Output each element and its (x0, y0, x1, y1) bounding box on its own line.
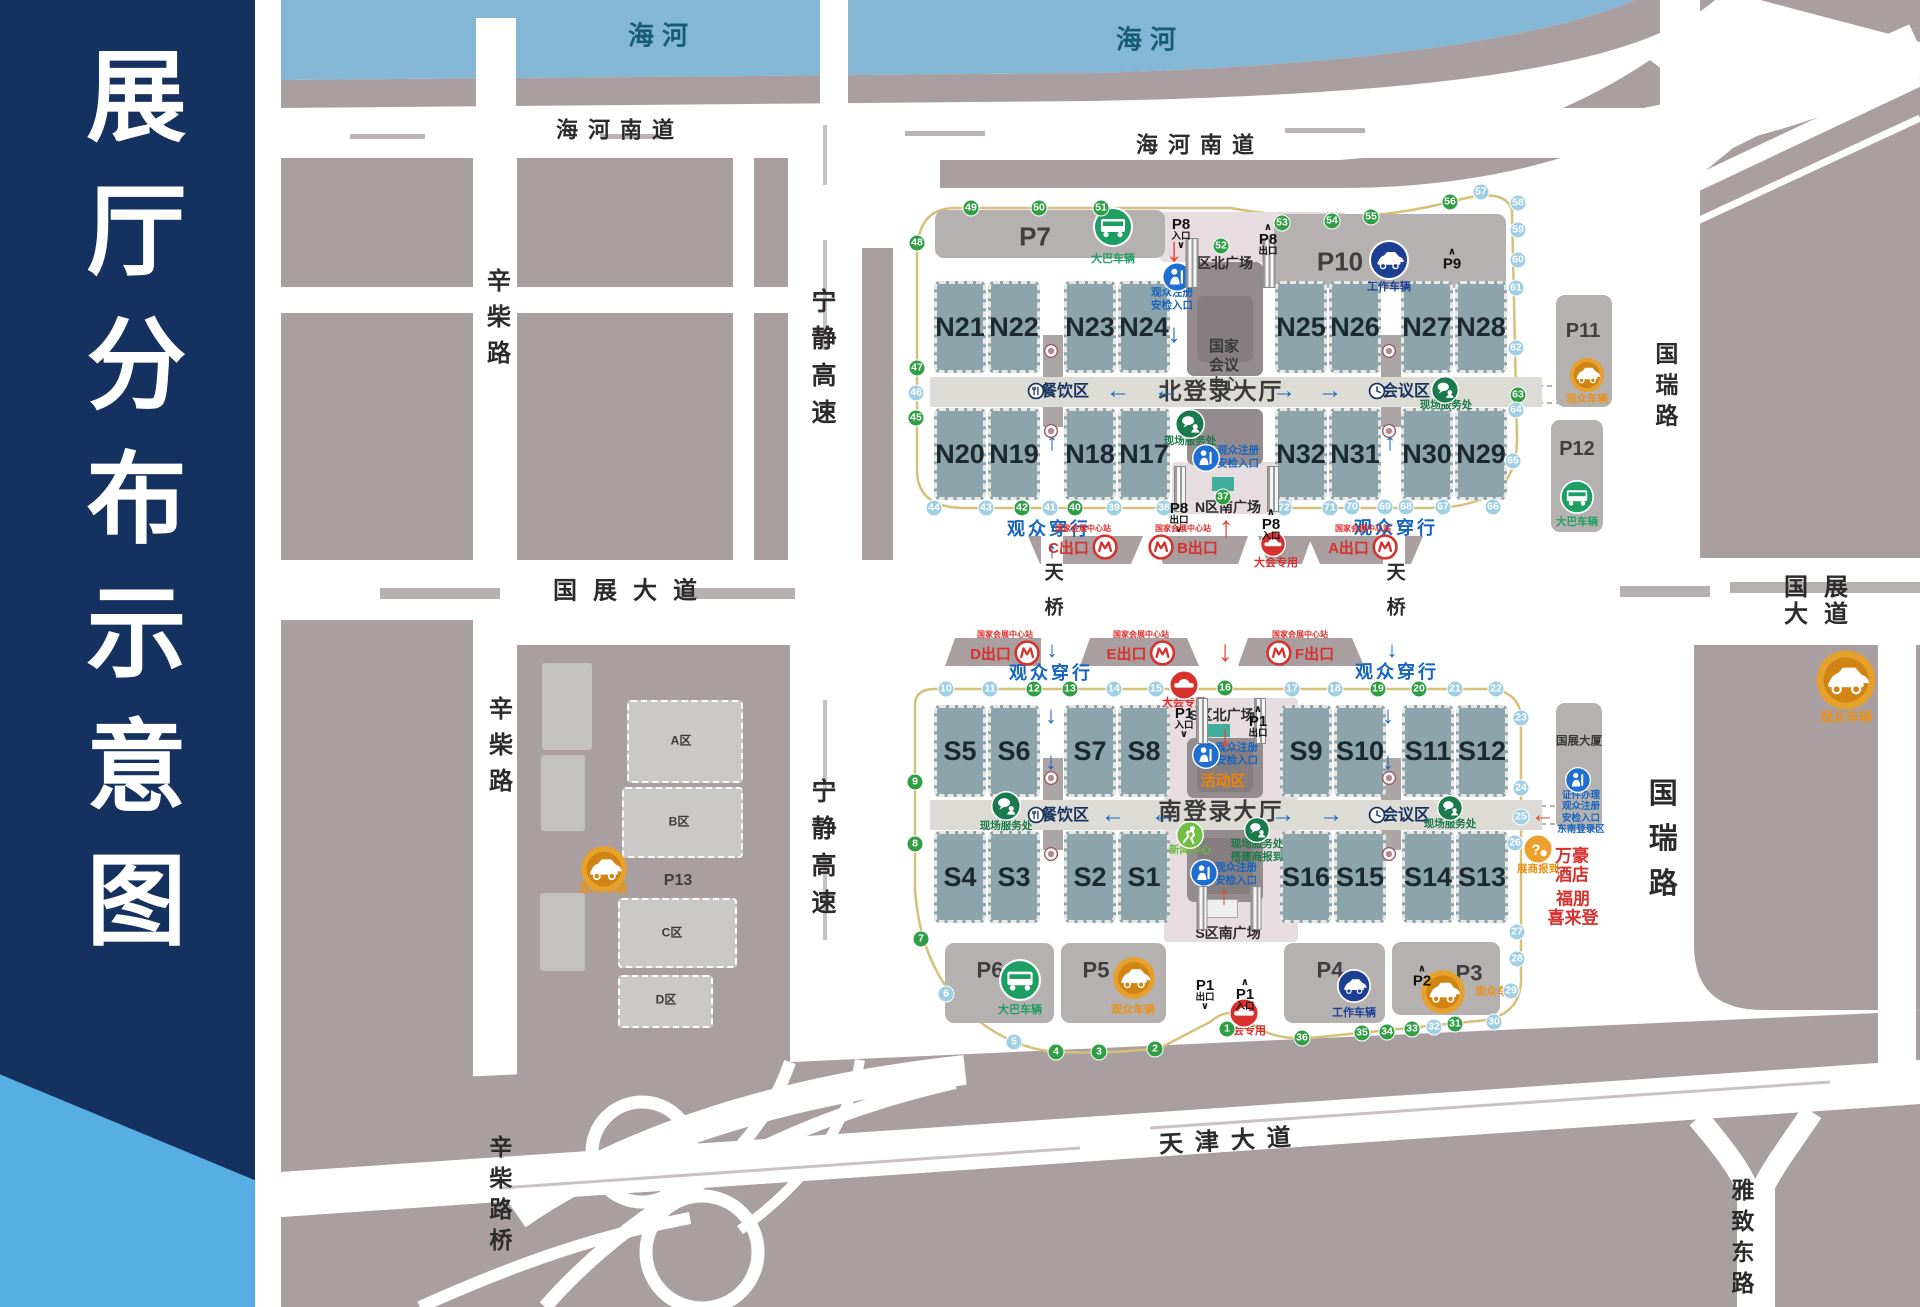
route-marker-27: 27 (1509, 924, 1526, 941)
exhibition-map-page: N21N22N23N24N25N26N27N28N20N19N18N17N32N… (0, 0, 1920, 1307)
caret-down-icon: ∨ (1174, 730, 1193, 738)
parking-label-P7: P7 (1019, 222, 1051, 251)
route-marker-16: 16 (1217, 680, 1234, 697)
metro-station-label: 国家会展中心站 (1272, 629, 1328, 640)
direction-arrow-icon: ← (1101, 803, 1125, 827)
guozhan-tower-label: 国展大厦 (1556, 736, 1602, 749)
river-label: 海河 (628, 21, 696, 50)
hall-label-N31: N31 (1330, 439, 1380, 469)
hotel-label-marriott: 万豪 酒店 (1555, 847, 1589, 884)
dining-area-label: 餐饮区 (1041, 807, 1089, 825)
route-marker-10: 10 (938, 681, 955, 698)
hall-label-S4: S4 (943, 862, 976, 892)
visitor-vehicles-icon (1112, 956, 1156, 1000)
dining-area-label: 餐饮区 (1041, 383, 1089, 401)
metro-exit-E: 国家会展中心站E出口 (1106, 640, 1175, 666)
direction-arrow-icon: ← (1106, 379, 1130, 403)
metro-exit-D: 国家会展中心站D出口 (970, 640, 1040, 666)
route-marker-43: 43 (978, 500, 995, 517)
registration-entrance-icon (1192, 741, 1220, 769)
hall-label-N19: N19 (989, 439, 1039, 469)
service-desk-icon (991, 791, 1021, 821)
route-marker-62: 62 (1508, 340, 1525, 357)
hall-label-N22: N22 (989, 312, 1039, 342)
gate-label-P8入口: ∧P8入口 (1261, 509, 1280, 542)
crossing-dot-icon (1382, 344, 1397, 359)
visitor-vehicles-icon (1569, 357, 1605, 393)
hall-label-S2: S2 (1073, 862, 1106, 892)
direction-arrow-icon: ↓ (1047, 639, 1058, 661)
route-marker-29: 29 (1503, 983, 1520, 1000)
bus-vehicles-icon (999, 959, 1041, 1001)
direction-arrow-icon: ← (1151, 803, 1175, 827)
route-marker-35: 35 (1354, 1025, 1371, 1042)
hall-label-N20: N20 (935, 439, 985, 469)
hall-label-S8: S8 (1127, 736, 1160, 766)
route-marker-71: 71 (1322, 500, 1339, 517)
route-marker-44: 44 (926, 500, 943, 517)
hall-label-N32: N32 (1276, 439, 1326, 469)
route-marker-36: 36 (1294, 1030, 1311, 1047)
visitor-vehicles-label: 观众车辆 (1566, 394, 1608, 406)
metro-station-label: 国家会展中心站 (1335, 523, 1391, 534)
gate-code: P1 (1235, 987, 1254, 1002)
road-label: 国展大道 (553, 579, 713, 606)
route-marker-8: 8 (907, 836, 924, 853)
route-marker-2: 2 (1147, 1041, 1164, 1058)
gate-label-P1入口: P1入口∨ (1174, 706, 1193, 739)
route-marker-57: 57 (1473, 184, 1490, 201)
gate-label-P8入口: P8入口∨ (1171, 217, 1190, 250)
page-title: 展厅分布示意图 (55, 44, 200, 982)
metro-icon (1014, 640, 1040, 666)
route-marker-61: 61 (1508, 280, 1525, 297)
metro-station-label: 国家会展中心站 (1155, 523, 1211, 534)
route-marker-67: 67 (1435, 499, 1452, 516)
direction-arrow-icon: ← (1531, 803, 1555, 827)
gate-code: P8 (1258, 232, 1277, 247)
hall-label-N23: N23 (1065, 312, 1115, 342)
registration-entrance-icon (1565, 767, 1591, 793)
metro-exit-A: 国家会展中心站A出口 (1328, 534, 1398, 560)
gate-code: P8 (1171, 217, 1190, 232)
activity-area-label: 活动区 (1200, 774, 1245, 791)
gate-direction: 出口 (1258, 247, 1277, 257)
hall-label-N27: N27 (1402, 312, 1452, 342)
service-desk-label: 现场服务处 (980, 821, 1033, 833)
zone-strip-3 (540, 893, 585, 971)
svg-text:?: ? (1531, 841, 1540, 858)
zone-label-B: B区 (669, 815, 690, 828)
metro-exit-label: A出口 (1328, 537, 1369, 558)
direction-arrow-icon: ↓ (1045, 704, 1057, 728)
route-marker-15: 15 (1148, 681, 1165, 698)
conference-only-label: 大会专用 (1254, 557, 1298, 569)
gate-code: P1 (1174, 706, 1193, 721)
hall-label-N29: N29 (1456, 439, 1506, 469)
gate-code: P1 (1195, 978, 1214, 993)
route-marker-68: 68 (1398, 499, 1415, 516)
route-marker-50: 50 (1031, 200, 1048, 217)
visitor-crossing-label: 观众穿行 (1355, 662, 1439, 682)
metro-exit-label: E出口 (1106, 643, 1146, 664)
parking-label-P11: P11 (1566, 320, 1600, 342)
hall-label-N17: N17 (1119, 439, 1169, 469)
hall-label-S15: S15 (1336, 862, 1384, 892)
road-label: 海河南道 (556, 119, 684, 144)
gate-stripes-icon (1196, 698, 1208, 744)
skybridge-label: 天桥 (1383, 562, 1404, 632)
route-marker-24: 24 (1513, 780, 1530, 797)
road-label: 辛柴路桥 (485, 1135, 511, 1259)
hall-label-S13: S13 (1458, 862, 1506, 892)
metro-icon (1266, 640, 1292, 666)
route-marker-1: 1 (1219, 1021, 1236, 1038)
registration-entrance-icon (1190, 859, 1218, 887)
gate-label-P8出口: ∧P8出口 (1258, 224, 1277, 257)
crossing-dot-icon (1044, 344, 1059, 359)
hall-label-S14: S14 (1404, 862, 1452, 892)
bus-vehicles-label: 大巴车辆 (998, 1004, 1042, 1016)
road-label: 宁静高速 (808, 778, 836, 926)
route-marker-28: 28 (1509, 951, 1526, 968)
route-marker-32: 32 (1426, 1019, 1443, 1036)
road-label: 辛柴路 (484, 696, 511, 804)
route-marker-3: 3 (1091, 1044, 1108, 1061)
gate-code: P1 (1248, 714, 1267, 729)
gate-code: P2 (1413, 974, 1431, 989)
route-marker-47: 47 (909, 360, 926, 377)
direction-arrow-icon: ↑ (1218, 882, 1231, 908)
direction-arrow-icon: ↑ (1219, 513, 1234, 543)
direction-arrow-icon: ↓ (1168, 320, 1181, 346)
route-marker-48: 48 (909, 235, 926, 252)
metro-station-label: 国家会展中心站 (977, 629, 1033, 640)
route-marker-20: 20 (1411, 681, 1428, 698)
metro-exit-C: 国家会展中心站C出口 (1048, 534, 1118, 560)
direction-arrow-icon: → (1272, 379, 1296, 403)
meeting-icon (1369, 383, 1386, 400)
visitor-vehicles-icon (1815, 649, 1877, 711)
hall-label-S11: S11 (1405, 736, 1452, 766)
parking-label-P13: P13 (664, 872, 692, 890)
route-marker-42: 42 (1014, 500, 1031, 517)
road-label: 国瑞路 (1644, 778, 1676, 913)
exhibitor-checkin-label: 展商报到 (1517, 864, 1559, 876)
road-label: 天津大道 (1158, 1125, 1303, 1160)
route-marker-40: 40 (1067, 500, 1084, 517)
route-marker-25: 25 (1513, 809, 1530, 826)
parking-label-P12: P12 (1559, 438, 1595, 460)
route-marker-66: 66 (1485, 499, 1502, 516)
road-label: 宁静高速 (808, 288, 836, 436)
hall-label-N30: N30 (1402, 439, 1452, 469)
bus-vehicles-label: 大巴车辆 (1091, 253, 1135, 265)
gate-code: P8 (1169, 501, 1188, 516)
route-marker-21: 21 (1447, 681, 1464, 698)
route-marker-11: 11 (982, 681, 999, 698)
no-entry-icon (1169, 670, 1199, 700)
parking-label-P10: P10 (1317, 247, 1363, 276)
work-vehicles-label: 工作车辆 (1332, 1007, 1376, 1019)
metro-exit-F: 国家会展中心站F出口 (1266, 640, 1334, 666)
hall-label-N24: N24 (1119, 312, 1169, 342)
crossing-dot-icon (1044, 771, 1059, 786)
metro-station-label: 国家会展中心站 (1113, 629, 1169, 640)
work-vehicles-icon (1337, 969, 1371, 1003)
route-marker-30: 30 (1486, 1014, 1503, 1031)
skybridge-label: 天桥 (1041, 562, 1062, 632)
service-desk-icon (1175, 409, 1205, 439)
route-marker-18: 18 (1327, 681, 1344, 698)
zone-strip-1 (542, 663, 592, 750)
route-marker-17: 17 (1284, 681, 1301, 698)
zone-label-C: C区 (662, 926, 683, 939)
route-marker-69: 69 (1377, 499, 1394, 516)
visitor-vehicles-icon (580, 845, 628, 893)
route-marker-22: 22 (1488, 681, 1505, 698)
metro-icon (1372, 534, 1398, 560)
bus-vehicles-icon (1560, 480, 1594, 514)
route-marker-41: 41 (1042, 500, 1059, 517)
route-marker-70: 70 (1344, 499, 1361, 516)
direction-arrow-icon: → (1319, 803, 1343, 827)
metro-icon (1150, 640, 1176, 666)
hall-label-S16: S16 (1282, 862, 1330, 892)
route-marker-6: 6 (938, 986, 955, 1003)
hall-label-S1: S1 (1127, 862, 1160, 892)
route-marker-19: 19 (1370, 681, 1387, 698)
zone-label-D: D区 (656, 993, 677, 1006)
hall-label-S10: S10 (1336, 736, 1384, 766)
gate-direction: 出口 (1248, 729, 1267, 739)
news-center-icon (1176, 821, 1204, 849)
gate-direction: 入口 (1235, 1002, 1254, 1012)
hall-label-S9: S9 (1289, 736, 1322, 766)
route-marker-46: 46 (908, 385, 925, 402)
route-marker-58: 58 (1510, 195, 1527, 212)
metro-exit-label: D出口 (970, 643, 1011, 664)
exhibitor-checkin-icon: ? (1523, 834, 1553, 864)
service-desk-icon (1431, 376, 1459, 404)
southeast-login-label: 证件办理 观众注册 安检入口 东南登录区 (1557, 790, 1605, 836)
river-label: 海河 (1116, 25, 1184, 54)
gate-stripes-icon (1197, 886, 1208, 930)
route-marker-64: 64 (1508, 402, 1525, 419)
road-label: 国展大道 (1776, 575, 1872, 629)
route-marker-33: 33 (1404, 1021, 1421, 1038)
bus-vehicles-label: 大巴车辆 (1556, 517, 1598, 529)
gate-stripes-icon (1267, 466, 1279, 512)
registration-entrance-icon (1192, 444, 1220, 472)
gate-label-P1入口: ∧P1入口 (1235, 979, 1254, 1012)
hall-label-N21: N21 (935, 312, 985, 342)
zone-label-A: A区 (671, 734, 692, 747)
route-marker-59: 59 (1510, 222, 1527, 239)
hall-label-N26: N26 (1330, 312, 1380, 342)
route-marker-12: 12 (1026, 681, 1043, 698)
zone-strip-2 (541, 755, 585, 831)
road-label: 辛柴路 (482, 268, 509, 376)
metro-exit-label: B出口 (1177, 537, 1218, 558)
route-marker-13: 13 (1062, 681, 1079, 698)
route-marker-23: 23 (1513, 710, 1530, 727)
route-marker-4: 4 (1048, 1044, 1065, 1061)
route-marker-55: 55 (1363, 209, 1380, 226)
route-marker-14: 14 (1106, 681, 1123, 698)
crossing-dot-icon (1382, 847, 1397, 862)
direction-arrow-icon: ↓ (1382, 704, 1394, 728)
direction-arrow-icon: → (1318, 379, 1342, 403)
route-marker-39: 39 (1106, 500, 1123, 517)
caret-down-icon: ∨ (1195, 1002, 1214, 1010)
dining-icon (1028, 807, 1045, 824)
direction-arrow-icon: ← (1154, 379, 1178, 403)
route-marker-9: 9 (907, 774, 924, 791)
parking-label-P5: P5 (1083, 959, 1110, 984)
metro-icon (1092, 534, 1118, 560)
visitor-vehicles-label: 观众车辆 (1111, 1004, 1155, 1016)
route-marker-56: 56 (1442, 194, 1459, 211)
sidebar: 展厅分布示意图 (0, 0, 255, 1307)
gate-label-P9: ∧P9 (1443, 249, 1461, 272)
metro-exit-label: F出口 (1295, 643, 1334, 664)
route-marker-51: 51 (1093, 200, 1110, 217)
hall-label-S12: S12 (1458, 736, 1506, 766)
road-label: 海河南道 (1136, 134, 1264, 159)
hall-label-N18: N18 (1065, 439, 1115, 469)
visitor-vehicles-label: 观众车辆 (1820, 711, 1872, 726)
direction-arrow-icon: ↓ (1218, 637, 1233, 667)
gate-direction: 入口 (1261, 532, 1280, 542)
crossing-dot-icon (1382, 424, 1397, 439)
route-marker-52: 52 (1213, 238, 1230, 255)
direction-arrow-icon: ↓ (1387, 639, 1398, 661)
service-desk-icon (1437, 795, 1463, 821)
work-vehicles-icon (1369, 240, 1409, 280)
service-desk-icon (1244, 817, 1270, 843)
route-marker-49: 49 (963, 200, 980, 217)
route-marker-34: 34 (1379, 1024, 1396, 1041)
gate-code: P9 (1443, 257, 1461, 272)
gate-label-P1出口: ∧P1出口 (1248, 706, 1267, 739)
registration-entrance-label: 观众注册 安检入口 (1217, 444, 1259, 469)
hotel-label-four-points: 福朋 喜来登 (1548, 890, 1599, 927)
crossing-dot-icon (1382, 771, 1397, 786)
meeting-icon (1369, 807, 1386, 824)
gate-stripes-icon (1251, 886, 1262, 930)
dining-icon (1028, 383, 1045, 400)
metro-icon (1148, 534, 1174, 560)
hall-label-S3: S3 (997, 862, 1030, 892)
hall-label-N25: N25 (1276, 312, 1326, 342)
crossing-dot-icon (1044, 847, 1059, 862)
hall-label-S7: S7 (1073, 736, 1106, 766)
route-marker-37: 37 (1215, 489, 1232, 506)
route-marker-60: 60 (1510, 252, 1527, 269)
route-marker-5: 5 (1006, 1034, 1023, 1051)
gate-label-P1出口: P1出口∨ (1195, 978, 1214, 1011)
metro-exit-B: 国家会展中心站B出口 (1148, 534, 1218, 560)
caret-down-icon: ∨ (1171, 241, 1190, 249)
route-marker-65: 65 (1505, 453, 1522, 470)
route-marker-7: 7 (913, 931, 930, 948)
road-label: 雅致东路 (1727, 1178, 1753, 1302)
route-marker-54: 54 (1324, 213, 1341, 230)
metro-station-label: 国家会展中心站 (1055, 523, 1111, 534)
gate-code: P8 (1261, 517, 1280, 532)
gate-label-P2: ∧P2 (1413, 966, 1431, 989)
road-label: 国瑞路 (1651, 342, 1677, 435)
route-marker-31: 31 (1447, 1016, 1464, 1033)
direction-arrow-icon: ↓ (1218, 722, 1233, 752)
map-items-layer: N21N22N23N24N25N26N27N28N20N19N18N17N32N… (0, 0, 1920, 1307)
metro-exit-label: C出口 (1048, 537, 1089, 558)
work-vehicles-label: 工作车辆 (1367, 281, 1411, 293)
direction-arrow-icon: → (1271, 803, 1295, 827)
crossing-dot-icon (1044, 424, 1059, 439)
hall-label-S5: S5 (943, 736, 976, 766)
hall-label-S6: S6 (997, 736, 1030, 766)
hall-label-N28: N28 (1456, 312, 1506, 342)
route-marker-45: 45 (908, 410, 925, 427)
route-marker-26: 26 (1507, 835, 1524, 852)
